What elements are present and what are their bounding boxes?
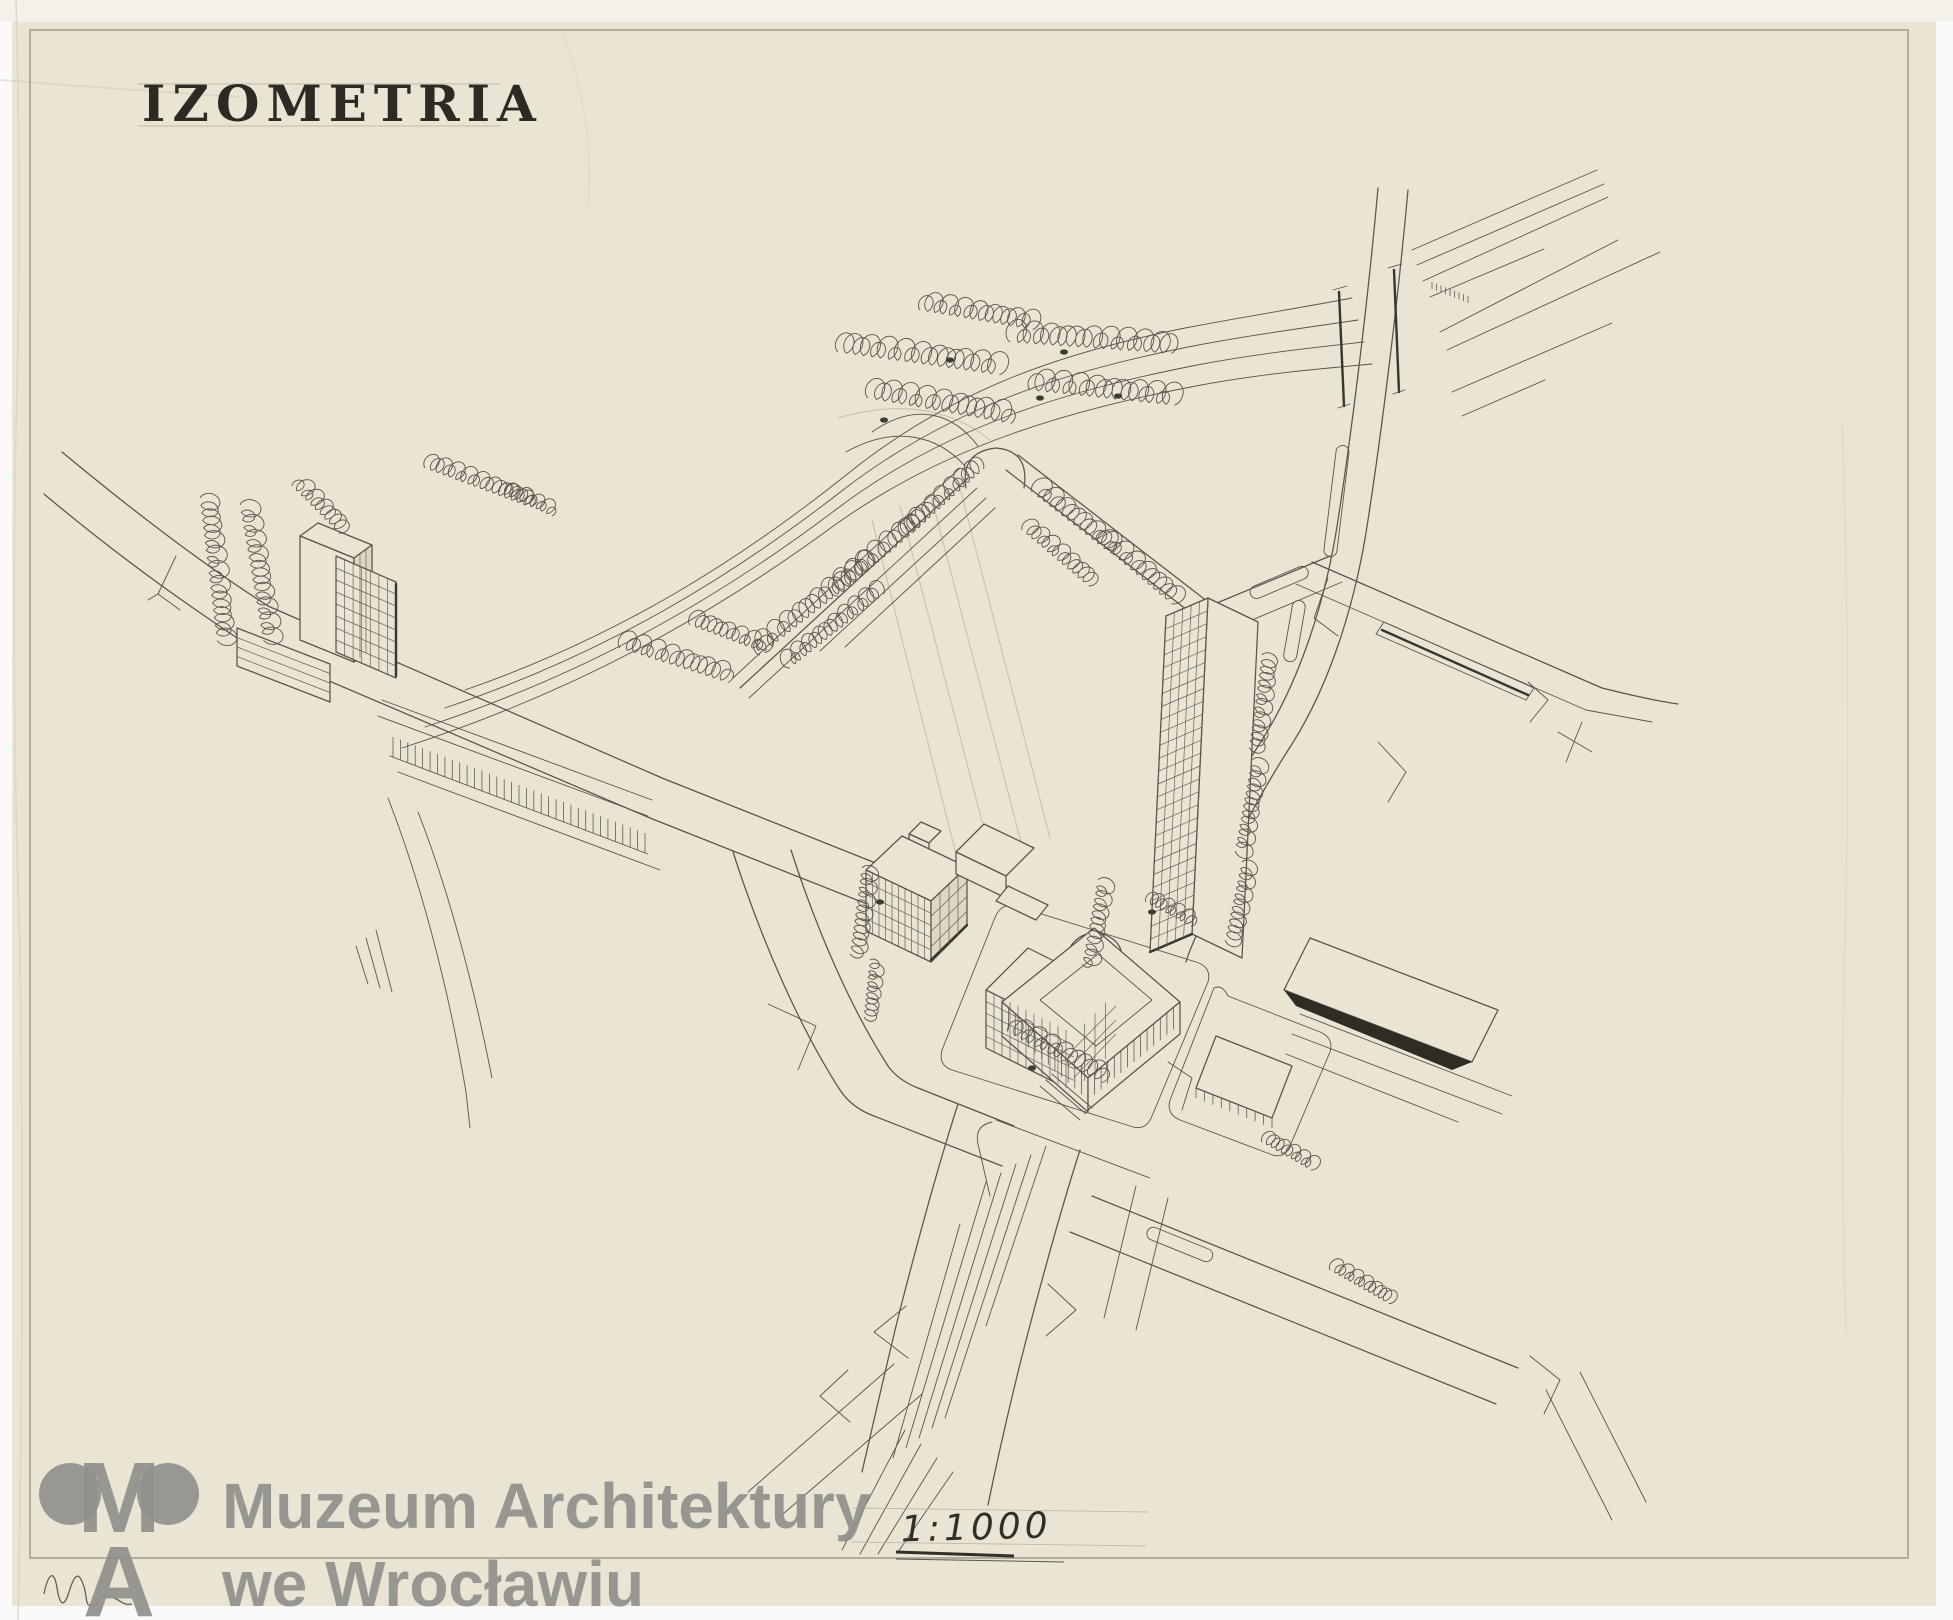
scale-label: 1:1000 [900, 1505, 1052, 1550]
ma-logo-letter-a: A [83, 1526, 155, 1620]
scanned-architectural-drawing: IZOMETRIA [0, 0, 1953, 1620]
tracing-paper-sheet [0, 0, 1953, 1620]
drawing-title-block: IZOMETRIA [138, 74, 543, 133]
watermark-line1: Muzeum Architektury [222, 1470, 871, 1542]
drawing-title: IZOMETRIA [142, 74, 543, 133]
watermark-line2: we Wrocławiu [221, 1548, 644, 1620]
